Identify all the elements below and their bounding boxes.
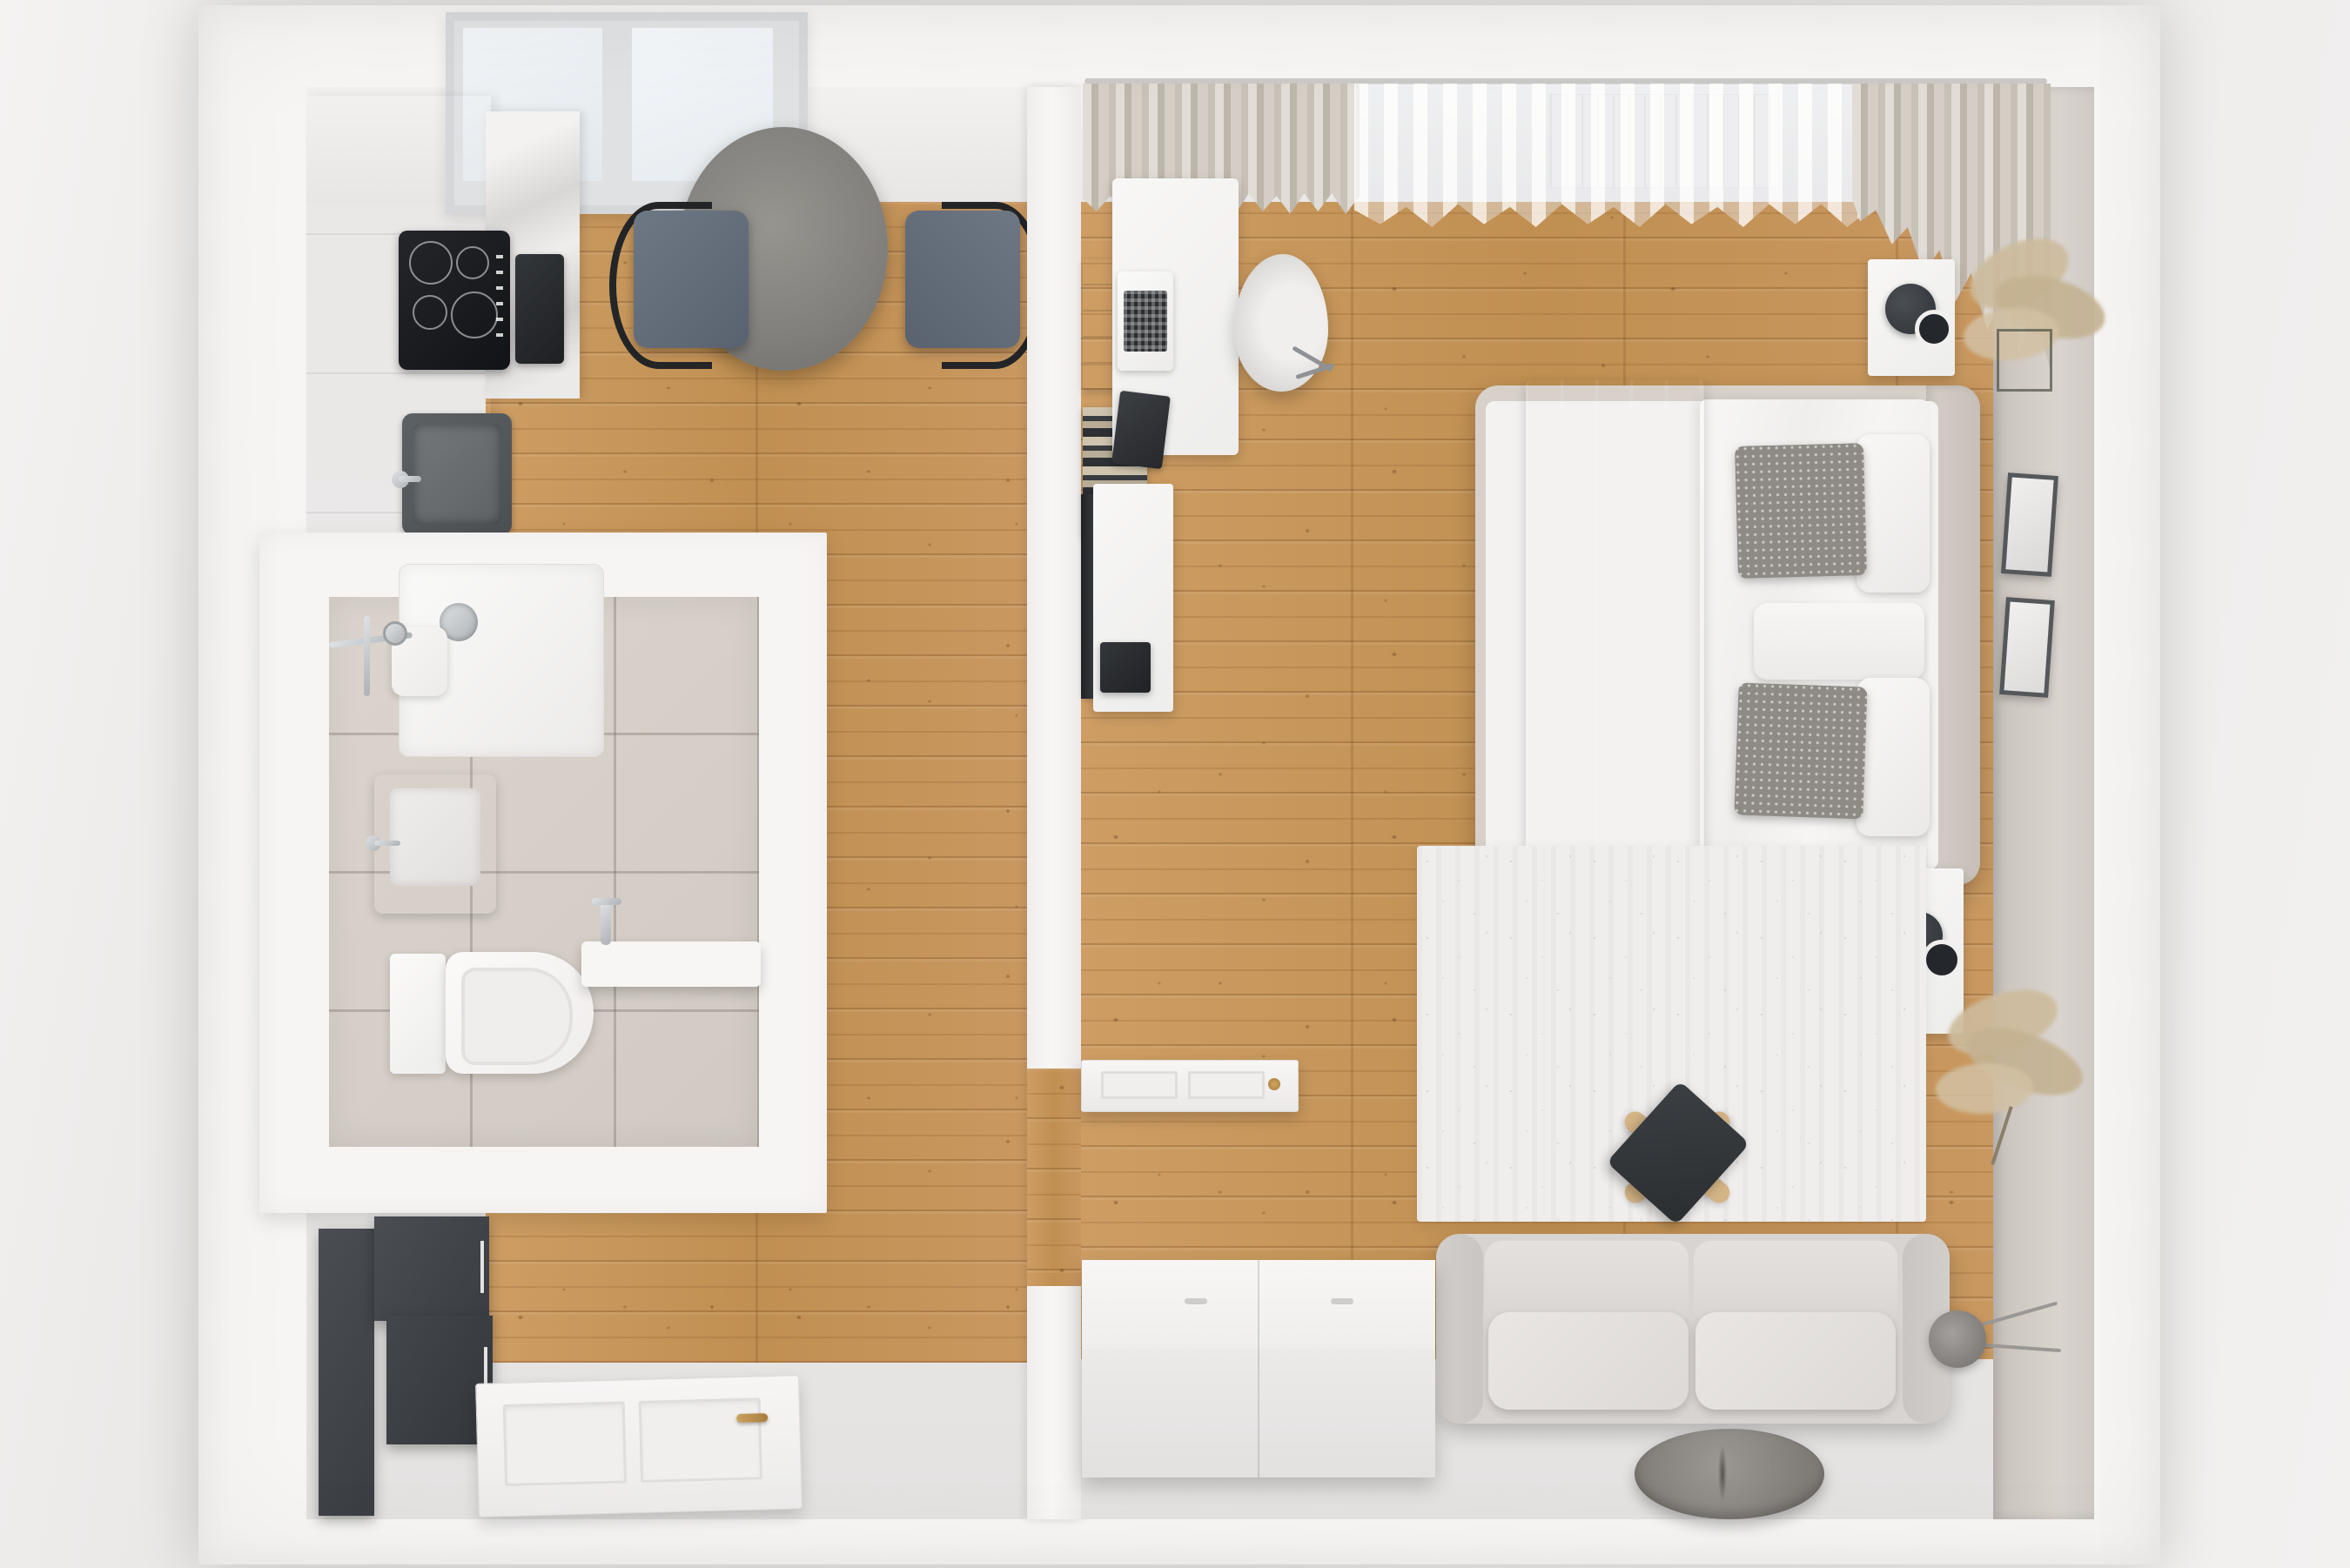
pouf-crease — [1718, 1444, 1727, 1502]
chair-seat — [905, 211, 1020, 348]
picture-frame-upper — [2001, 472, 2058, 577]
shower-pipe — [364, 616, 370, 696]
pampas-plume — [1935, 1062, 2034, 1116]
toilet-seat — [461, 968, 573, 1065]
nightstand-top — [1868, 259, 1955, 376]
bed-throw — [1526, 380, 1704, 890]
basin-spout — [374, 841, 400, 846]
door-opening-floor — [1027, 1069, 1081, 1286]
pampas-stem — [1991, 1106, 2012, 1165]
washbasin — [374, 774, 496, 914]
chest-handle — [1185, 1298, 1207, 1304]
stool-tray — [1607, 1081, 1750, 1225]
wardrobe-unit-upper — [374, 1216, 489, 1321]
dining-chair-right — [895, 197, 1044, 360]
chest-seam — [1258, 1260, 1259, 1478]
media-box — [1100, 642, 1151, 693]
shower-fixture — [329, 616, 425, 712]
living-room-door — [1081, 1060, 1299, 1112]
entrance-door — [475, 1375, 802, 1518]
door-panel-groove — [1188, 1071, 1265, 1099]
sofa-armrest-left — [1436, 1234, 1483, 1424]
page: { "meta": { "title": "Top-view 3D render… — [0, 0, 2350, 1568]
vanity-shelf — [581, 941, 761, 987]
pampas-plant-corner — [1958, 235, 2115, 426]
notebook — [1111, 391, 1171, 469]
tv-edge — [1081, 494, 1093, 699]
dining-chair-left — [609, 197, 759, 360]
door-panel-groove — [1101, 1071, 1178, 1099]
curtain-sheer — [1354, 84, 1873, 227]
planter-frame — [1997, 329, 2052, 392]
wardrobe-handle — [480, 1241, 484, 1293]
laptop — [1118, 271, 1173, 371]
door-panel-groove — [639, 1397, 762, 1483]
door-panel-groove — [503, 1401, 627, 1486]
burner-ring — [409, 241, 453, 285]
arc-floor-lamp — [1929, 1291, 2094, 1396]
pampas-plant-nightstand — [1934, 983, 2095, 1166]
door-handle-brass — [736, 1413, 768, 1423]
kitchen-sink — [402, 413, 512, 535]
cooktop-knobs — [496, 255, 503, 345]
burner-ring — [451, 291, 498, 338]
kitchen — [306, 87, 1029, 535]
induction-cooktop — [399, 231, 510, 370]
pillow-white-bottom — [1856, 678, 1930, 836]
wardrobe-panel — [319, 1229, 374, 1516]
office-chair — [1234, 254, 1328, 392]
built-in-oven — [515, 254, 564, 364]
vanity-faucet-bar — [592, 898, 621, 905]
sofa — [1436, 1234, 1950, 1424]
storage-chest — [1082, 1260, 1435, 1478]
faucet-spout — [399, 476, 421, 482]
bed — [1475, 385, 1980, 885]
lamp-disc — [1929, 1310, 1986, 1368]
pillow-gray-bottom — [1734, 682, 1867, 819]
lamp-top-view — [1915, 310, 1953, 348]
shower-head — [383, 621, 407, 646]
curtain-rod — [1084, 78, 2047, 84]
chest-handle — [1331, 1298, 1353, 1304]
laptop-keyboard — [1124, 291, 1167, 352]
hallway — [306, 1213, 1029, 1519]
sofa-seat-right — [1695, 1312, 1896, 1410]
chair-seat — [634, 211, 749, 348]
door-key-brass — [1268, 1078, 1280, 1090]
pillow-gray-top — [1735, 443, 1867, 579]
vanity-faucet — [601, 901, 611, 945]
picture-frame-lower — [1999, 597, 2055, 698]
toilet — [446, 952, 594, 1074]
burner-ring — [456, 246, 489, 279]
basin-bowl — [390, 788, 480, 886]
burner-ring — [413, 295, 447, 330]
partition-wall — [1027, 87, 1081, 1519]
toilet-tank — [390, 954, 446, 1074]
pillow-white-top — [1856, 434, 1930, 593]
lamp-top-view — [1922, 940, 1962, 980]
sink-basin — [413, 424, 501, 525]
bathroom — [259, 533, 827, 1213]
pouf — [1635, 1429, 1824, 1519]
coffee-stool — [1612, 1086, 1742, 1227]
pillow-roll — [1754, 603, 1924, 680]
sofa-seat-left — [1488, 1312, 1689, 1410]
